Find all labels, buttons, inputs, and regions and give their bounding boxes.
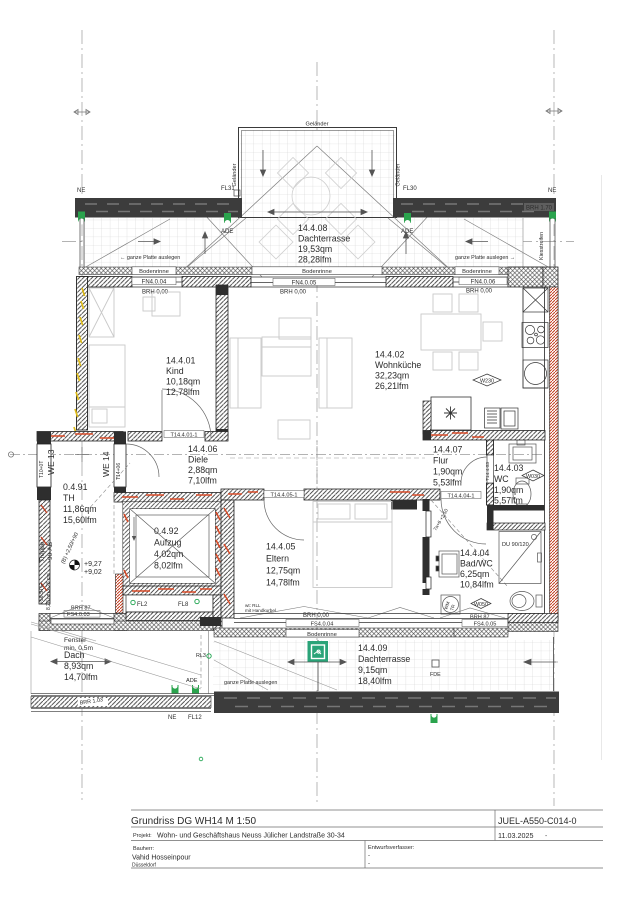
svg-text:10,18qm: 10,18qm — [166, 377, 200, 387]
svg-text:Bad/WC: Bad/WC — [460, 559, 493, 569]
svg-text:Geländer: Geländer — [396, 163, 402, 186]
svg-text:NE: NE — [168, 715, 176, 721]
svg-text:Kind: Kind — [166, 366, 184, 376]
svg-text:Wohn- und Geschäftshaus Neuss: Wohn- und Geschäftshaus Neuss Jülicher L… — [157, 833, 345, 840]
svg-text:+9,02: +9,02 — [84, 569, 102, 576]
svg-text:14,78lfm: 14,78lfm — [266, 578, 300, 588]
svg-text:FL8: FL8 — [178, 602, 189, 608]
svg-text:T14.4.03: T14.4.03 — [485, 462, 491, 481]
svg-text:5,53lfm: 5,53lfm — [433, 478, 462, 488]
svg-text:Fenster: Fenster — [64, 637, 87, 644]
svg-text:8,28 cm x 26 cm: 8,28 cm x 26 cm — [46, 573, 52, 610]
svg-text:FS4.0.03: FS4.0.03 — [67, 612, 90, 618]
svg-text:Aufzug: Aufzug — [154, 538, 181, 548]
svg-text:FL2: FL2 — [137, 602, 148, 608]
svg-text:Wohnküche: Wohnküche — [375, 360, 421, 370]
svg-text:14.4.06: 14.4.06 — [188, 444, 217, 454]
svg-text:Vahid Hosseinpour: Vahid Hosseinpour — [132, 855, 191, 862]
svg-text:+9,27: +9,27 — [84, 561, 102, 568]
svg-text:-: - — [368, 853, 370, 859]
svg-text:FS4.0.04: FS4.0.04 — [311, 622, 334, 628]
svg-text:← ganze Platte auslegen: ← ganze Platte auslegen — [120, 255, 180, 261]
svg-text:W030: W030 — [526, 474, 540, 480]
svg-text:BRH 0,00: BRH 0,00 — [142, 290, 169, 296]
svg-text:Grundriss DG WH14 M 1:50: Grundriss DG WH14 M 1:50 — [131, 816, 256, 827]
svg-text:12,78lfm: 12,78lfm — [166, 387, 200, 397]
svg-text:WE 13: WE 13 — [46, 449, 56, 475]
svg-text:2,88qm: 2,88qm — [188, 465, 217, 475]
svg-text:Düsseldorf: Düsseldorf — [132, 863, 157, 869]
svg-text:11.03.2025: 11.03.2025 — [498, 831, 533, 840]
svg-text:Dachterrasse: Dachterrasse — [358, 654, 410, 664]
svg-text:FL12: FL12 — [188, 715, 202, 721]
svg-text:~56 STG: ~56 STG — [39, 584, 45, 604]
svg-text:Diele: Diele — [188, 455, 208, 465]
svg-text:14.4.01: 14.4.01 — [166, 356, 195, 366]
svg-text:10,84lfm: 10,84lfm — [460, 580, 494, 590]
svg-text:9,15qm: 9,15qm — [358, 665, 387, 675]
svg-text:14.4.02: 14.4.02 — [375, 350, 404, 360]
svg-text:FN4.0.04: FN4.0.04 — [142, 279, 167, 285]
svg-text:Bodenrinne: Bodenrinne — [462, 269, 492, 275]
svg-text:BRH 0,00: BRH 0,00 — [303, 613, 330, 619]
svg-text:W230: W230 — [480, 378, 494, 384]
svg-text:1,90qm: 1,90qm — [433, 467, 462, 477]
svg-text:FS4.0.05: FS4.0.05 — [474, 622, 497, 628]
svg-text:Eltern: Eltern — [266, 554, 289, 564]
svg-text:Entwurfsverfasser:: Entwurfsverfasser: — [368, 845, 415, 851]
svg-text:-: - — [545, 833, 547, 840]
svg-text:FDE: FDE — [430, 672, 441, 678]
svg-text:14.4.09: 14.4.09 — [358, 643, 387, 653]
svg-text:0.4.92: 0.4.92 — [154, 526, 179, 536]
svg-text:FN4.0.05: FN4.0.05 — [292, 280, 317, 286]
svg-text:Geländer: Geländer — [232, 163, 238, 186]
svg-text:T14.4.05-1: T14.4.05-1 — [270, 492, 297, 498]
svg-text:DU 90/120: DU 90/120 — [502, 542, 529, 548]
svg-text:Geländer: Geländer — [305, 122, 328, 128]
svg-text:BRH 0,00: BRH 0,00 — [280, 290, 307, 296]
svg-text:FL31: FL31 — [221, 186, 235, 192]
svg-text:14,70lfm: 14,70lfm — [64, 672, 98, 682]
svg-text:Kiesstreifen: Kiesstreifen — [539, 232, 545, 260]
svg-text:Projekt:: Projekt: — [133, 833, 152, 839]
svg-text:6,25qm: 6,25qm — [460, 569, 489, 579]
svg-text:NE: NE — [548, 188, 556, 194]
svg-text:28,28lfm: 28,28lfm — [298, 254, 332, 264]
svg-text:T14.4.01-1: T14.4.01-1 — [170, 432, 197, 438]
svg-text:Flur: Flur — [433, 456, 448, 466]
svg-text:8,02lfm: 8,02lfm — [154, 561, 183, 571]
svg-text:JUEL-A550-C014-0: JUEL-A550-C014-0 — [498, 816, 577, 826]
svg-text:14.4.08: 14.4.08 — [298, 223, 327, 233]
svg-text:Bodenrinne: Bodenrinne — [139, 269, 169, 275]
svg-text:WE 14: WE 14 — [101, 451, 111, 477]
svg-text:ganze Platte auslegen →: ganze Platte auslegen → — [455, 255, 515, 261]
svg-text:7,10lfm: 7,10lfm — [188, 476, 217, 486]
svg-text:T10+0T: T10+0T — [39, 461, 45, 478]
svg-text:32,23qm: 32,23qm — [375, 370, 409, 380]
svg-text:8,93qm: 8,93qm — [64, 661, 93, 671]
svg-text:Dachterrasse: Dachterrasse — [298, 234, 350, 244]
svg-text:FN4.0.06: FN4.0.06 — [471, 279, 496, 285]
svg-text:19,53qm: 19,53qm — [298, 244, 332, 254]
svg-text:14.4.03: 14.4.03 — [494, 463, 523, 473]
svg-text:14.4.05: 14.4.05 — [266, 542, 295, 552]
svg-text:FL30: FL30 — [403, 186, 417, 192]
svg-text:15,60lfm: 15,60lfm — [63, 515, 97, 525]
svg-text:90-AB: 90-AB — [47, 542, 54, 560]
svg-text:Bodenrinne: Bodenrinne — [307, 632, 337, 638]
svg-text:14.4.07: 14.4.07 — [433, 445, 462, 455]
svg-text:ADE: ADE — [401, 229, 413, 235]
svg-text:T14.4.04-1: T14.4.04-1 — [447, 493, 474, 499]
svg-text:12,75qm: 12,75qm — [266, 566, 300, 576]
svg-text:Bodenrinne: Bodenrinne — [302, 269, 332, 275]
svg-text:1,90qm: 1,90qm — [494, 485, 523, 495]
svg-text:Bauherr:: Bauherr: — [133, 846, 155, 852]
svg-text:ADE: ADE — [221, 229, 233, 235]
svg-text:BRH 1.70: BRH 1.70 — [526, 206, 553, 212]
svg-text:WC: WC — [494, 474, 509, 484]
svg-text:ADE: ADE — [186, 678, 198, 684]
svg-text:Dach: Dach — [64, 650, 85, 660]
svg-text:RL3: RL3 — [196, 653, 206, 659]
svg-text:Treppe: Treppe — [39, 541, 46, 562]
svg-text:0.4.91: 0.4.91 — [63, 482, 88, 492]
svg-text:W050: W050 — [474, 602, 488, 608]
svg-text:18,40lfm: 18,40lfm — [358, 676, 392, 686]
svg-text:ganze Platte auslegen: ganze Platte auslegen — [224, 680, 277, 686]
svg-text:TH: TH — [63, 493, 75, 503]
svg-text:NE: NE — [77, 188, 85, 194]
svg-text:4,02qm: 4,02qm — [154, 549, 183, 559]
svg-text:26,21lfm: 26,21lfm — [375, 381, 409, 391]
svg-text:-: - — [368, 861, 370, 867]
